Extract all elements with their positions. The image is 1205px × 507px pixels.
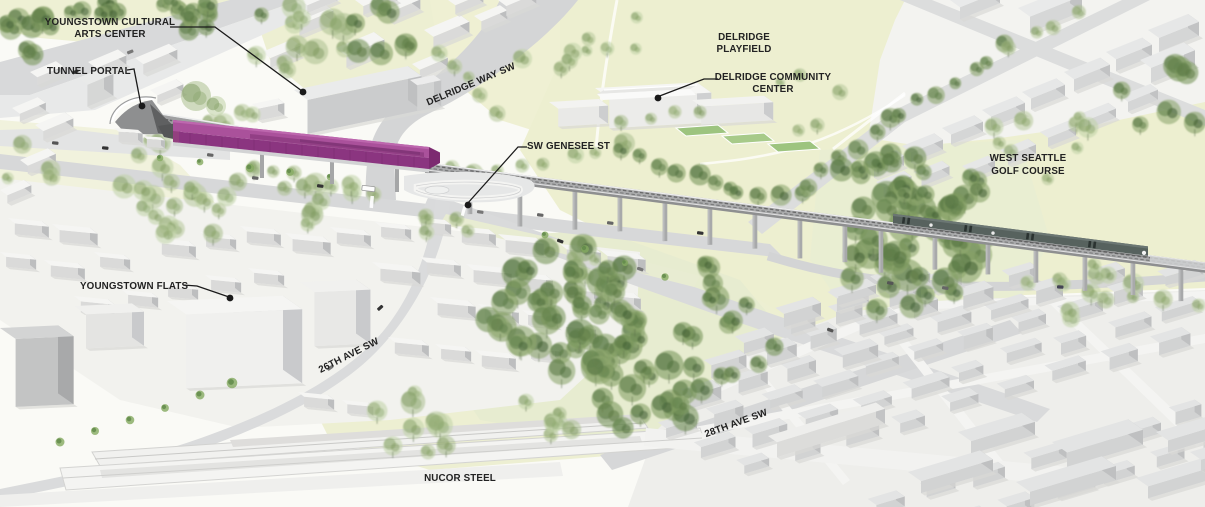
svg-text:DELRIDGE: DELRIDGE xyxy=(718,32,770,43)
svg-text:CENTER: CENTER xyxy=(752,84,793,95)
svg-text:ARTS CENTER: ARTS CENTER xyxy=(74,29,145,40)
svg-text:TUNNEL PORTAL: TUNNEL PORTAL xyxy=(47,66,131,77)
svg-text:NUCOR STEEL: NUCOR STEEL xyxy=(424,473,496,484)
svg-text:WEST SEATTLE: WEST SEATTLE xyxy=(990,153,1067,164)
svg-text:YOUNGSTOWN FLATS: YOUNGSTOWN FLATS xyxy=(80,281,188,292)
svg-text:DELRIDGE COMMUNITY: DELRIDGE COMMUNITY xyxy=(715,72,832,83)
svg-text:YOUNGSTOWN CULTURAL: YOUNGSTOWN CULTURAL xyxy=(45,17,175,28)
svg-text:GOLF COURSE: GOLF COURSE xyxy=(991,166,1065,177)
svg-text:SW GENESEE ST: SW GENESEE ST xyxy=(527,141,610,152)
svg-text:PLAYFIELD: PLAYFIELD xyxy=(717,44,772,55)
